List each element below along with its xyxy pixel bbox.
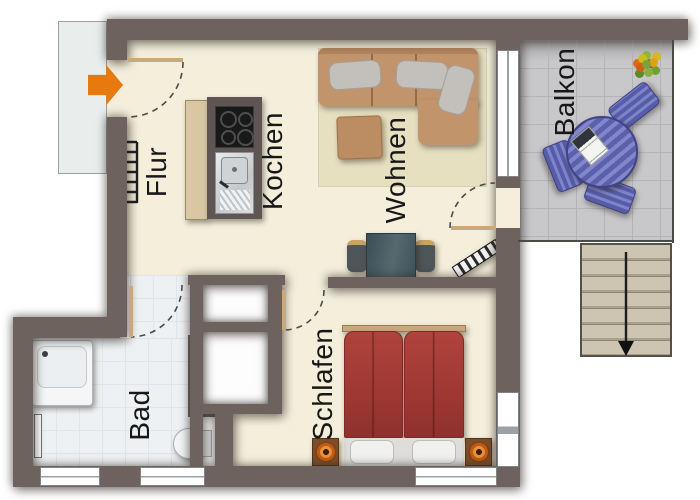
room-label-bad: Bad — [124, 389, 156, 440]
door-arc-bath — [131, 285, 182, 337]
coat-rack-icon — [127, 142, 137, 203]
room-label-kochen: Kochen — [257, 112, 289, 210]
room-label-flur: Flur — [141, 147, 173, 197]
door-arc-entrance — [128, 62, 183, 117]
door-arc-bedroom — [284, 290, 324, 330]
floor-plan: Flur Kochen Wohnen Balkon Bad Schlafen — [0, 0, 700, 500]
room-label-balkon: Balkon — [549, 48, 581, 137]
stairs-arrow-head — [618, 341, 634, 356]
room-label-wohnen: Wohnen — [380, 117, 412, 224]
room-label-schlafen: Schlafen — [307, 328, 339, 441]
symbol-overlay — [0, 0, 700, 500]
door-arc-balcony — [450, 183, 495, 228]
